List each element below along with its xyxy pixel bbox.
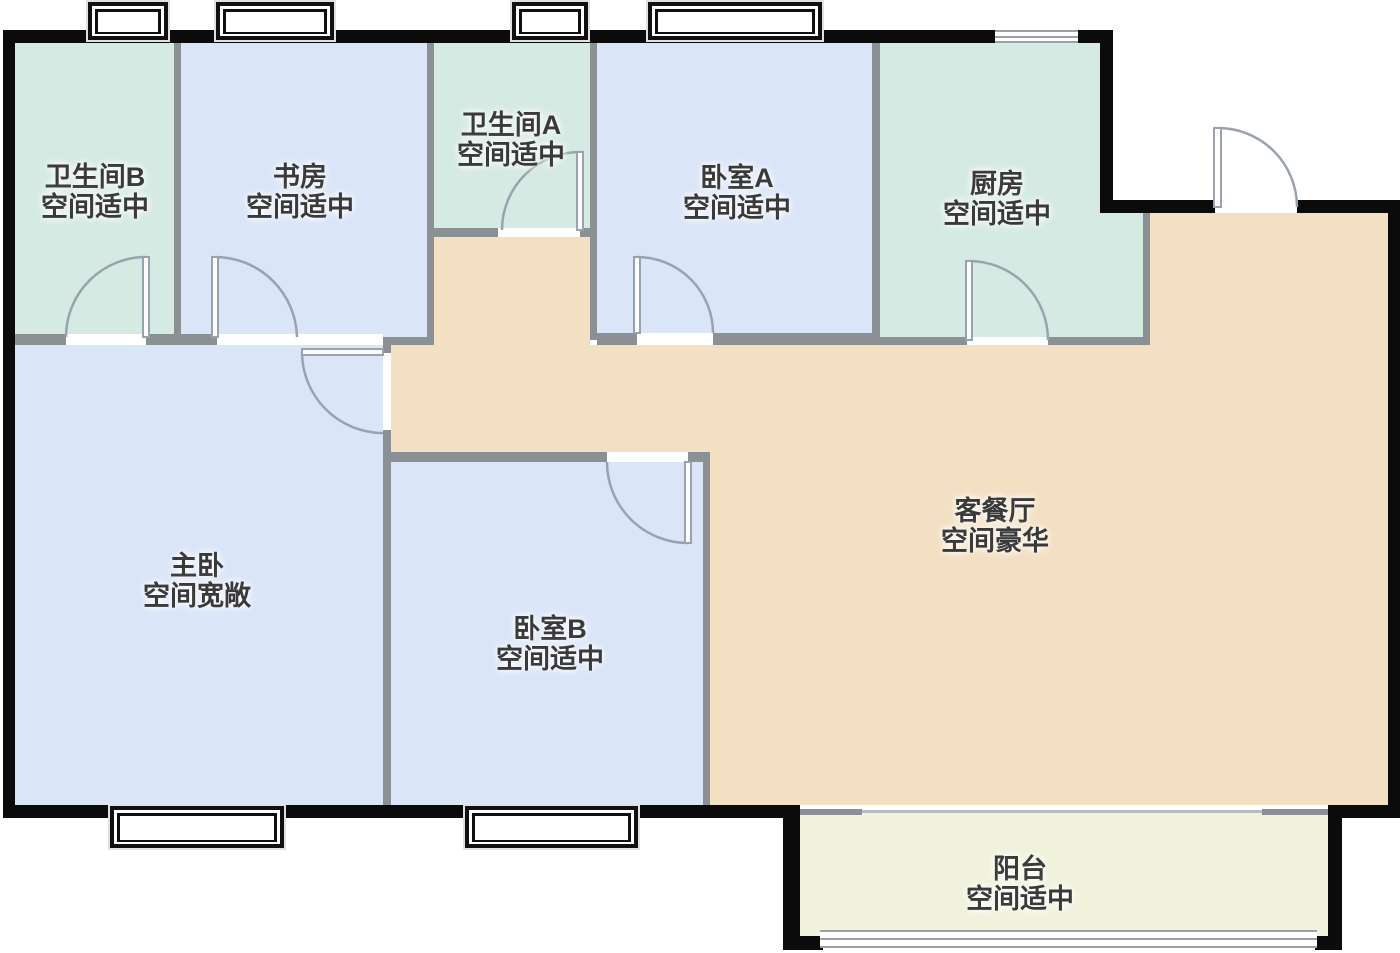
room-name: 厨房: [943, 169, 1051, 199]
room-name: 卧室A: [683, 163, 791, 193]
room-label-master-bedroom: 主卧 空间宽敞: [143, 551, 251, 611]
room-label-bedroom-b: 卧室B 空间适中: [496, 614, 604, 674]
room-desc: 空间适中: [683, 193, 791, 223]
room-name: 卫生间B: [41, 162, 149, 192]
room-desc: 空间适中: [457, 140, 565, 170]
room-desc: 空间适中: [246, 192, 354, 222]
door-bedroom-a: [634, 257, 713, 333]
room-name: 客餐厅: [941, 496, 1049, 526]
door-arc: [637, 257, 713, 333]
room-desc: 空间适中: [41, 192, 149, 222]
door-leaf: [302, 349, 383, 355]
room-label-living-dining: 客餐厅 空间豪华: [941, 496, 1049, 556]
door-study: [212, 257, 297, 337]
room-name: 阳台: [966, 854, 1074, 884]
room-label-bathroom-a: 卫生间A 空间适中: [457, 110, 565, 170]
door-arc: [66, 257, 146, 337]
room-name: 书房: [246, 162, 354, 192]
door-bathroom-b: [66, 257, 149, 337]
room-desc: 空间宽敞: [143, 581, 251, 611]
room-name: 卧室B: [496, 614, 604, 644]
door-bedroom-b: [607, 462, 691, 543]
room-label-study: 书房 空间适中: [246, 162, 354, 222]
room-label-balcony: 阳台 空间适中: [966, 854, 1074, 914]
door-arc: [1218, 128, 1297, 207]
room-desc: 空间豪华: [941, 526, 1049, 556]
door-entry: [1214, 128, 1297, 207]
door-arc: [607, 462, 688, 543]
door-leaf: [1214, 128, 1221, 207]
door-kitchen: [966, 261, 1048, 340]
door-leaf: [143, 257, 149, 337]
floorplan: 卫生间B 空间适中 书房 空间适中 卫生间A 空间适中 卧室A 空间适中 厨房 …: [0, 0, 1400, 953]
door-layer: [0, 0, 1400, 953]
door-leaf: [966, 261, 972, 340]
room-desc: 空间适中: [943, 199, 1051, 229]
door-arc: [215, 257, 297, 337]
door-arc: [969, 261, 1048, 340]
door-leaf: [685, 462, 691, 543]
door-leaf: [577, 152, 583, 230]
door-leaf: [634, 257, 640, 333]
door-master-bedroom: [302, 349, 383, 433]
door-leaf: [212, 257, 218, 337]
room-name: 卫生间A: [457, 110, 565, 140]
room-desc: 空间适中: [966, 884, 1074, 914]
door-arc: [302, 352, 383, 433]
room-label-bedroom-a: 卧室A 空间适中: [683, 163, 791, 223]
room-desc: 空间适中: [496, 644, 604, 674]
room-name: 主卧: [143, 551, 251, 581]
room-label-kitchen: 厨房 空间适中: [943, 169, 1051, 229]
room-label-bathroom-b: 卫生间B 空间适中: [41, 162, 149, 222]
